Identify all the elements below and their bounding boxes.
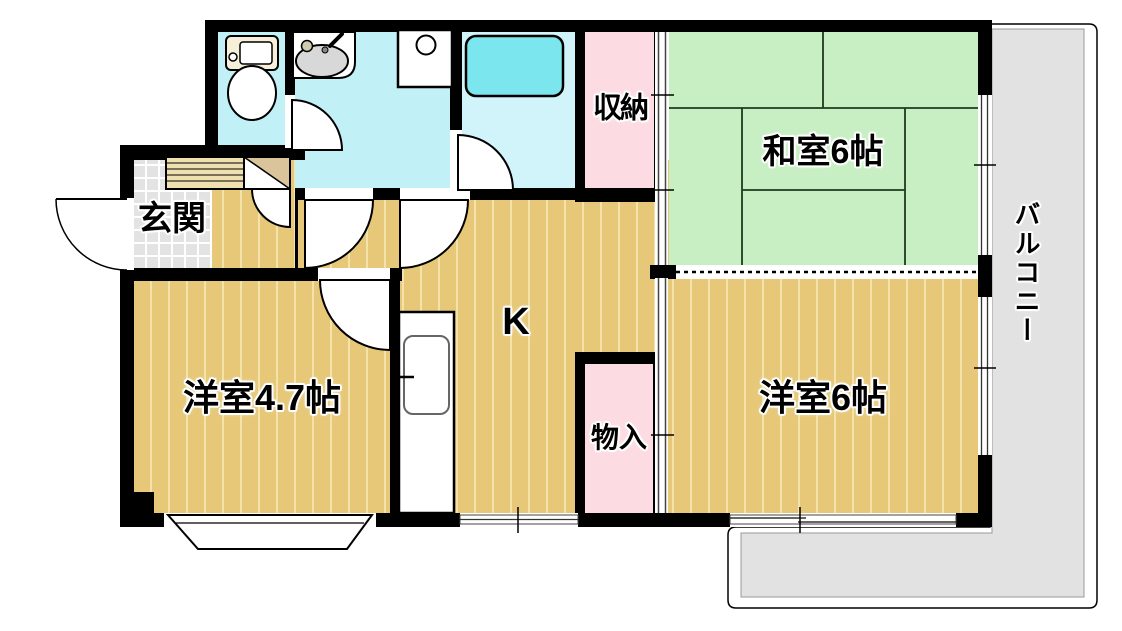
label-genkan: 玄関 (138, 202, 206, 236)
label-balcony: バルコニー (1013, 201, 1039, 346)
floorplan: 玄関 収納 和室6帖 K 洋室4.7帖 物入 洋室6帖 バルコニー (0, 0, 1122, 631)
label-kitchen: K (502, 303, 529, 341)
washing-machine-icon (398, 30, 452, 87)
entry-cabinet-icon (244, 157, 290, 189)
plan-overlay (0, 0, 1122, 631)
open-boundary (676, 265, 978, 279)
bathtub-icon (466, 36, 563, 96)
toilet-door-swing (292, 100, 342, 150)
kitchen-sink-icon (395, 312, 454, 513)
kitchen-door-swing (400, 200, 468, 268)
toilet-icon (226, 36, 278, 120)
western47-door-swing (320, 280, 390, 350)
hall-door-swing (252, 189, 290, 227)
label-western-6: 洋室6帖 (759, 380, 887, 416)
bay-window-icon (164, 513, 376, 549)
label-washitsu: 和室6帖 (763, 135, 884, 169)
bath-door-swing (458, 135, 513, 190)
shoe-cabinet-icon (166, 157, 244, 189)
window-kitchen-south (460, 507, 578, 533)
label-western-4-7: 洋室4.7帖 (183, 380, 341, 416)
label-closet: 物入 (591, 424, 647, 452)
washroom-door-swing (305, 200, 373, 268)
entrance-door-swing (56, 199, 127, 270)
washbasin-icon (293, 32, 355, 78)
label-storage: 収納 (593, 95, 647, 124)
